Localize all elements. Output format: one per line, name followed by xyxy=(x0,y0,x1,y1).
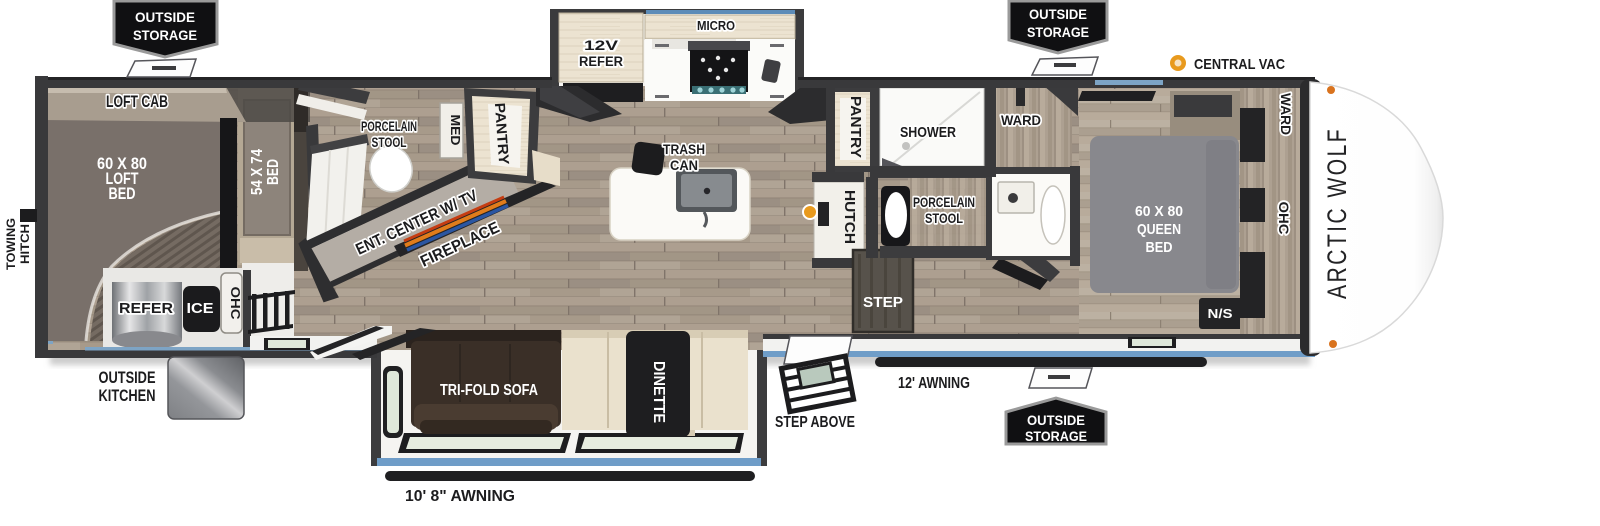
svg-text:STORAGE: STORAGE xyxy=(1027,25,1089,40)
svg-text:MICRO: MICRO xyxy=(697,18,735,33)
svg-text:STEP ABOVE: STEP ABOVE xyxy=(775,414,855,431)
svg-text:LOFT CAB: LOFT CAB xyxy=(106,92,168,111)
svg-text:OHC: OHC xyxy=(228,287,243,321)
svg-text:TRI-FOLD SOFA: TRI-FOLD SOFA xyxy=(440,382,538,399)
svg-text:DINETTE: DINETTE xyxy=(650,361,667,423)
svg-text:HITCH: HITCH xyxy=(18,224,32,264)
svg-text:TRASH: TRASH xyxy=(663,142,705,157)
svg-text:STOOL: STOOL xyxy=(925,210,963,226)
svg-text:10' 8" AWNING: 10' 8" AWNING xyxy=(405,488,515,505)
svg-text:ICE: ICE xyxy=(187,301,214,317)
svg-text:STORAGE: STORAGE xyxy=(1025,429,1087,444)
svg-text:HUTCH: HUTCH xyxy=(841,190,857,244)
svg-text:OUTSIDE: OUTSIDE xyxy=(135,10,195,25)
svg-text:60 X 80: 60 X 80 xyxy=(1135,203,1183,220)
svg-text:OUTSIDE: OUTSIDE xyxy=(1027,413,1085,428)
svg-text:12V: 12V xyxy=(584,38,618,53)
svg-text:QUEEN: QUEEN xyxy=(1137,221,1181,238)
svg-text:STORAGE: STORAGE xyxy=(133,28,197,43)
svg-text:TOWING: TOWING xyxy=(4,218,18,270)
svg-text:OUTSIDE: OUTSIDE xyxy=(1029,7,1087,22)
svg-text:KITCHEN: KITCHEN xyxy=(99,386,156,405)
svg-text:OUTSIDE: OUTSIDE xyxy=(99,368,156,387)
svg-text:OHC: OHC xyxy=(1276,202,1292,235)
svg-text:REFER: REFER xyxy=(119,301,174,317)
svg-text:12' AWNING: 12' AWNING xyxy=(898,375,970,392)
svg-text:WARD: WARD xyxy=(1001,112,1041,128)
svg-text:PORCELAIN: PORCELAIN xyxy=(361,118,417,134)
svg-text:BED: BED xyxy=(109,184,136,203)
svg-text:MED: MED xyxy=(448,115,463,146)
svg-text:STOOL: STOOL xyxy=(372,134,407,150)
svg-text:N/S: N/S xyxy=(1208,306,1233,321)
svg-text:CAN: CAN xyxy=(670,158,698,173)
svg-text:54 X 74: 54 X 74 xyxy=(249,149,266,195)
svg-text:PORCELAIN: PORCELAIN xyxy=(913,194,975,210)
svg-text:STEP: STEP xyxy=(863,294,903,311)
svg-text:WARD: WARD xyxy=(1278,93,1294,135)
svg-text:CENTRAL VAC: CENTRAL VAC xyxy=(1194,56,1285,73)
svg-text:ARCTIC WOLF: ARCTIC WOLF xyxy=(1322,127,1352,299)
svg-text:REFER: REFER xyxy=(579,54,623,69)
svg-text:BED: BED xyxy=(265,159,282,185)
svg-text:BED: BED xyxy=(1146,239,1173,256)
svg-text:PANTRY: PANTRY xyxy=(847,96,863,158)
svg-text:SHOWER: SHOWER xyxy=(900,124,956,141)
